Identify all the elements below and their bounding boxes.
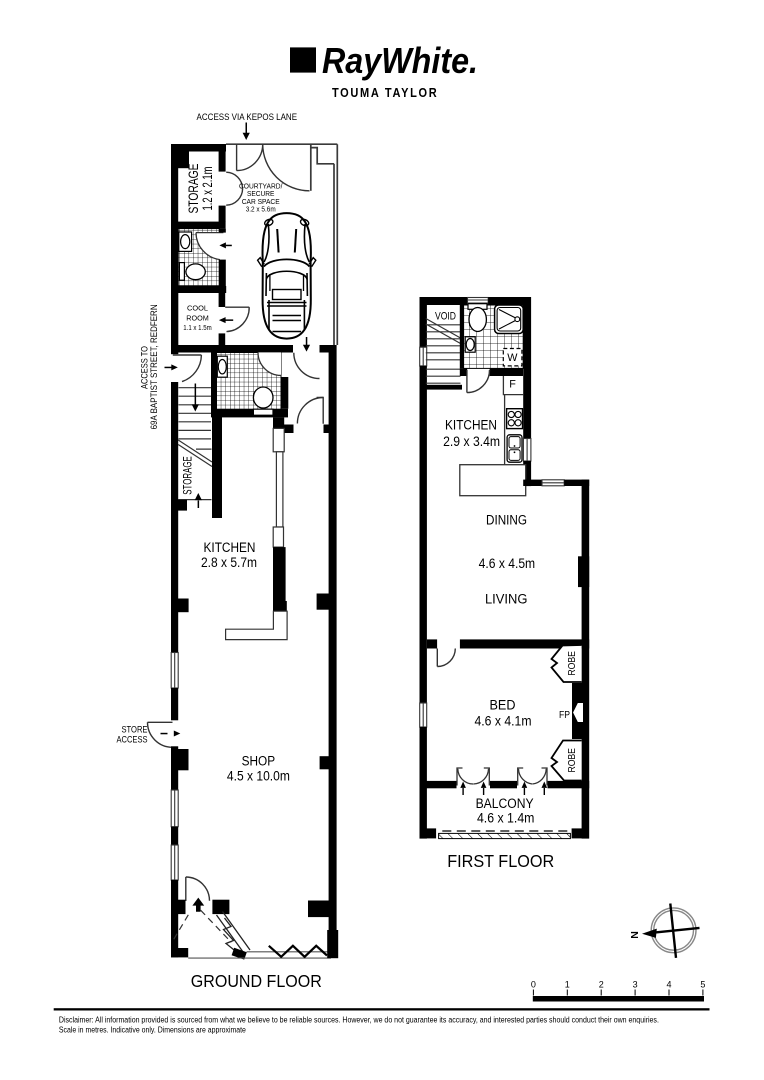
svg-text:FP: FP [559, 710, 570, 721]
svg-text:4.6 x 1.4m: 4.6 x 1.4m [477, 811, 535, 826]
svg-text:4: 4 [666, 980, 671, 990]
svg-text:W: W [507, 352, 518, 364]
svg-text:3: 3 [633, 980, 638, 990]
svg-text:F: F [509, 378, 516, 390]
svg-text:SHOP: SHOP [242, 754, 276, 769]
svg-text:1.2 x 2.1m: 1.2 x 2.1m [200, 167, 215, 211]
svg-text:Disclaimer: All information pr: Disclaimer: All information provided is … [59, 1015, 659, 1024]
svg-text:1: 1 [565, 980, 570, 990]
svg-text:STORAGE: STORAGE [182, 456, 194, 495]
svg-text:4.6 x 4.5m: 4.6 x 4.5m [479, 556, 536, 571]
svg-text:4.6 x 4.1m: 4.6 x 4.1m [475, 713, 532, 728]
svg-text:0: 0 [531, 980, 536, 990]
svg-text:KITCHEN: KITCHEN [204, 540, 256, 555]
svg-text:STORE: STORE [122, 725, 148, 735]
svg-text:2.9 x 3.4m: 2.9 x 3.4m [443, 434, 500, 449]
svg-text:STORAGE: STORAGE [186, 163, 201, 213]
svg-text:ROBE: ROBE [567, 748, 578, 773]
svg-text:ACCESS TO: ACCESS TO [140, 346, 150, 389]
svg-text:LIVING: LIVING [485, 592, 528, 607]
svg-text:KITCHEN: KITCHEN [445, 418, 497, 433]
svg-text:ROBE: ROBE [567, 651, 578, 676]
svg-text:1.1 x 1.5m: 1.1 x 1.5m [183, 323, 212, 332]
svg-text:TOUMA TAYLOR: TOUMA TAYLOR [332, 85, 439, 100]
svg-text:2.8 x 5.7m: 2.8 x 5.7m [201, 555, 257, 570]
svg-text:5: 5 [700, 980, 705, 990]
svg-text:BED: BED [490, 697, 516, 712]
svg-text:RayWhite.: RayWhite. [322, 40, 478, 81]
svg-text:4.5 x 10.0m: 4.5 x 10.0m [227, 768, 290, 783]
svg-text:ACCESS VIA KEPOS LANE: ACCESS VIA KEPOS LANE [197, 112, 298, 122]
svg-text:Scale in metres. Indicative on: Scale in metres. Indicative only. Dimens… [59, 1025, 247, 1034]
svg-text:COOL: COOL [187, 303, 208, 312]
svg-text:VOID: VOID [435, 311, 456, 323]
svg-text:3.2 x 5.6m: 3.2 x 5.6m [246, 205, 276, 214]
svg-text:FIRST FLOOR: FIRST FLOOR [447, 851, 554, 871]
svg-text:69A BAPTIST STREET, REDFERN: 69A BAPTIST STREET, REDFERN [149, 304, 159, 429]
svg-text:ACCESS: ACCESS [117, 735, 148, 745]
svg-text:DINING: DINING [486, 512, 527, 527]
svg-text:ROOM: ROOM [186, 313, 209, 322]
svg-text:GROUND FLOOR: GROUND FLOOR [191, 971, 322, 991]
svg-text:2: 2 [599, 980, 604, 990]
svg-text:N: N [629, 931, 641, 939]
svg-text:BALCONY: BALCONY [476, 796, 534, 811]
